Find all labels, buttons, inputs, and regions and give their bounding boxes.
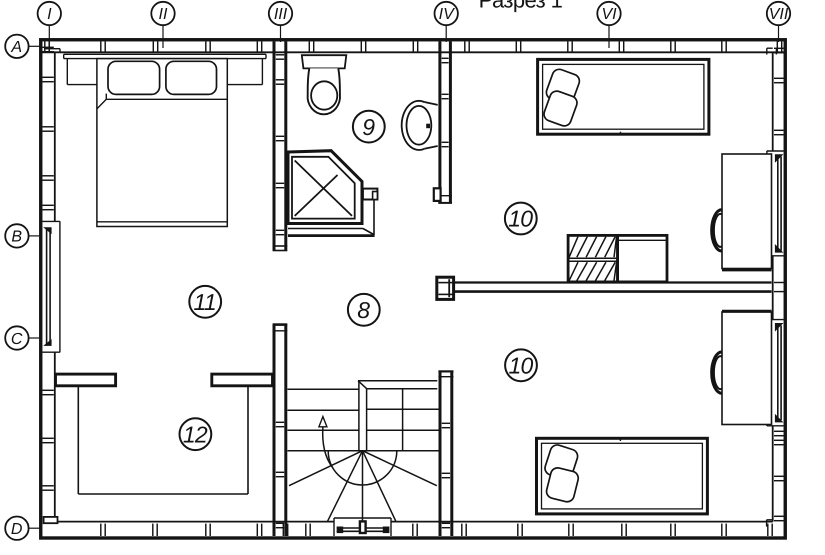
svg-text:I: I <box>47 6 52 23</box>
svg-text:IV: IV <box>439 6 455 23</box>
svg-text:10: 10 <box>509 353 534 379</box>
svg-text:B: B <box>11 229 22 246</box>
svg-text:8: 8 <box>357 297 370 323</box>
svg-text:12: 12 <box>183 421 208 447</box>
svg-text:VI: VI <box>601 6 617 23</box>
svg-text:II: II <box>159 6 168 23</box>
svg-text:A: A <box>10 39 22 56</box>
svg-text:9: 9 <box>362 114 375 140</box>
svg-text:III: III <box>274 6 288 23</box>
svg-text:Разрез 1: Разрез 1 <box>479 0 563 13</box>
svg-text:10: 10 <box>508 206 533 232</box>
svg-text:11: 11 <box>194 289 216 315</box>
svg-text:D: D <box>11 521 23 538</box>
svg-text:C: C <box>11 331 23 348</box>
svg-text:VII: VII <box>769 6 789 23</box>
